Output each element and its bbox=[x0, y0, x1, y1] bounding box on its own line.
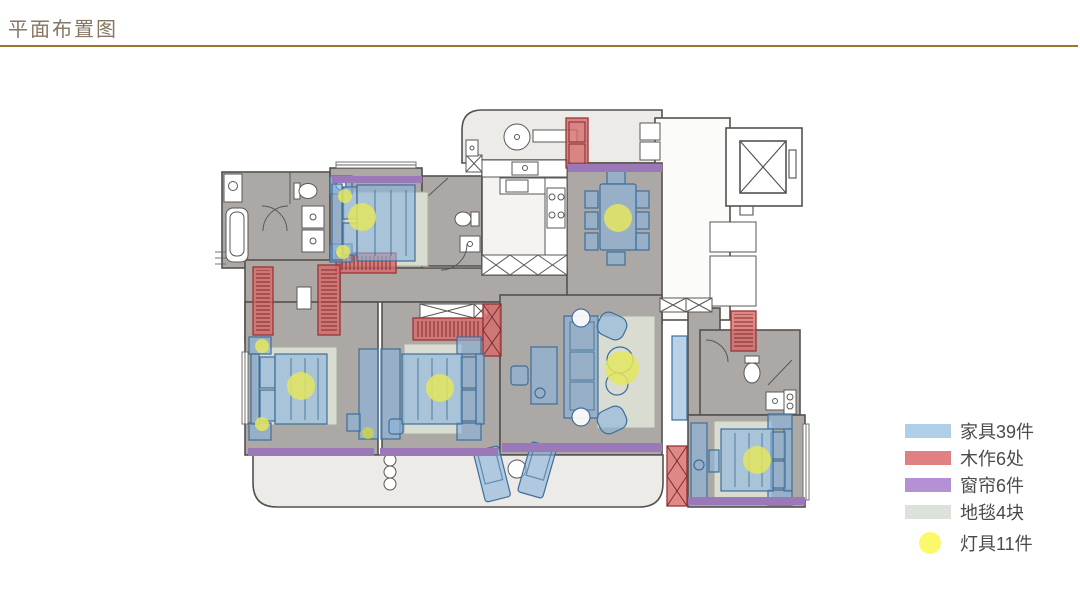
sink bbox=[460, 236, 480, 252]
side-table bbox=[347, 414, 360, 431]
toilet bbox=[299, 184, 317, 199]
curtain bbox=[568, 164, 662, 172]
light bbox=[255, 417, 269, 431]
sink bbox=[766, 392, 784, 410]
bench bbox=[709, 450, 719, 472]
vanity bbox=[302, 230, 324, 252]
sink-counter bbox=[224, 174, 242, 202]
carpets-swatch bbox=[905, 505, 951, 519]
light bbox=[255, 339, 269, 353]
curtain bbox=[332, 176, 422, 183]
legend-label: 地毯4块 bbox=[960, 499, 1024, 525]
light bbox=[336, 245, 350, 259]
toilet-tank bbox=[471, 212, 479, 226]
curtain bbox=[688, 497, 805, 505]
curtains-swatch bbox=[905, 478, 951, 492]
light bbox=[338, 189, 352, 203]
light bbox=[426, 374, 454, 402]
vanity bbox=[302, 206, 324, 228]
desk-unit bbox=[359, 349, 378, 439]
pot bbox=[384, 466, 396, 478]
curtain bbox=[248, 448, 374, 456]
washer bbox=[504, 124, 530, 150]
door-leaf bbox=[297, 287, 311, 309]
page: 平面布置图 bbox=[0, 0, 1080, 607]
toilet-tank bbox=[745, 356, 759, 363]
legend-label: 窗帘6件 bbox=[960, 472, 1024, 498]
light bbox=[605, 351, 639, 385]
kitchen-sink bbox=[512, 162, 538, 175]
light bbox=[287, 372, 315, 400]
entry-closet bbox=[710, 256, 756, 306]
light bbox=[604, 204, 632, 232]
woodwork-swatch bbox=[905, 451, 951, 465]
chair bbox=[389, 419, 403, 434]
cabinet bbox=[640, 123, 660, 140]
curtain bbox=[502, 443, 662, 452]
legend-item-lights: 灯具11件 bbox=[905, 532, 1034, 554]
chair bbox=[511, 366, 528, 385]
tv-cabinet bbox=[672, 336, 687, 420]
cabinet bbox=[640, 142, 660, 160]
dresser bbox=[691, 423, 707, 503]
light bbox=[362, 427, 374, 439]
legend: 家具39件 木作6处 窗帘6件 地毯4块 灯具11件 bbox=[905, 424, 1034, 567]
toilet bbox=[455, 212, 471, 226]
legend-label: 家具39件 bbox=[960, 418, 1034, 444]
toilet bbox=[744, 363, 760, 383]
light bbox=[743, 446, 771, 474]
light bbox=[348, 203, 376, 231]
lights-swatch-circle bbox=[919, 532, 941, 554]
legend-item-woodwork: 木作6处 bbox=[905, 451, 1034, 465]
entry-closet bbox=[710, 222, 756, 252]
pot bbox=[384, 478, 396, 490]
legend-item-curtains: 窗帘6件 bbox=[905, 478, 1034, 492]
furniture-swatch bbox=[905, 424, 951, 438]
bathtub bbox=[226, 208, 248, 262]
sofa bbox=[564, 309, 598, 426]
legend-label: 木作6处 bbox=[960, 445, 1024, 471]
legend-label: 灯具11件 bbox=[960, 530, 1033, 556]
small-sink bbox=[466, 140, 478, 156]
curtain bbox=[380, 448, 498, 456]
legend-item-furniture: 家具39件 bbox=[905, 424, 1034, 438]
legend-item-carpets: 地毯4块 bbox=[905, 505, 1034, 519]
